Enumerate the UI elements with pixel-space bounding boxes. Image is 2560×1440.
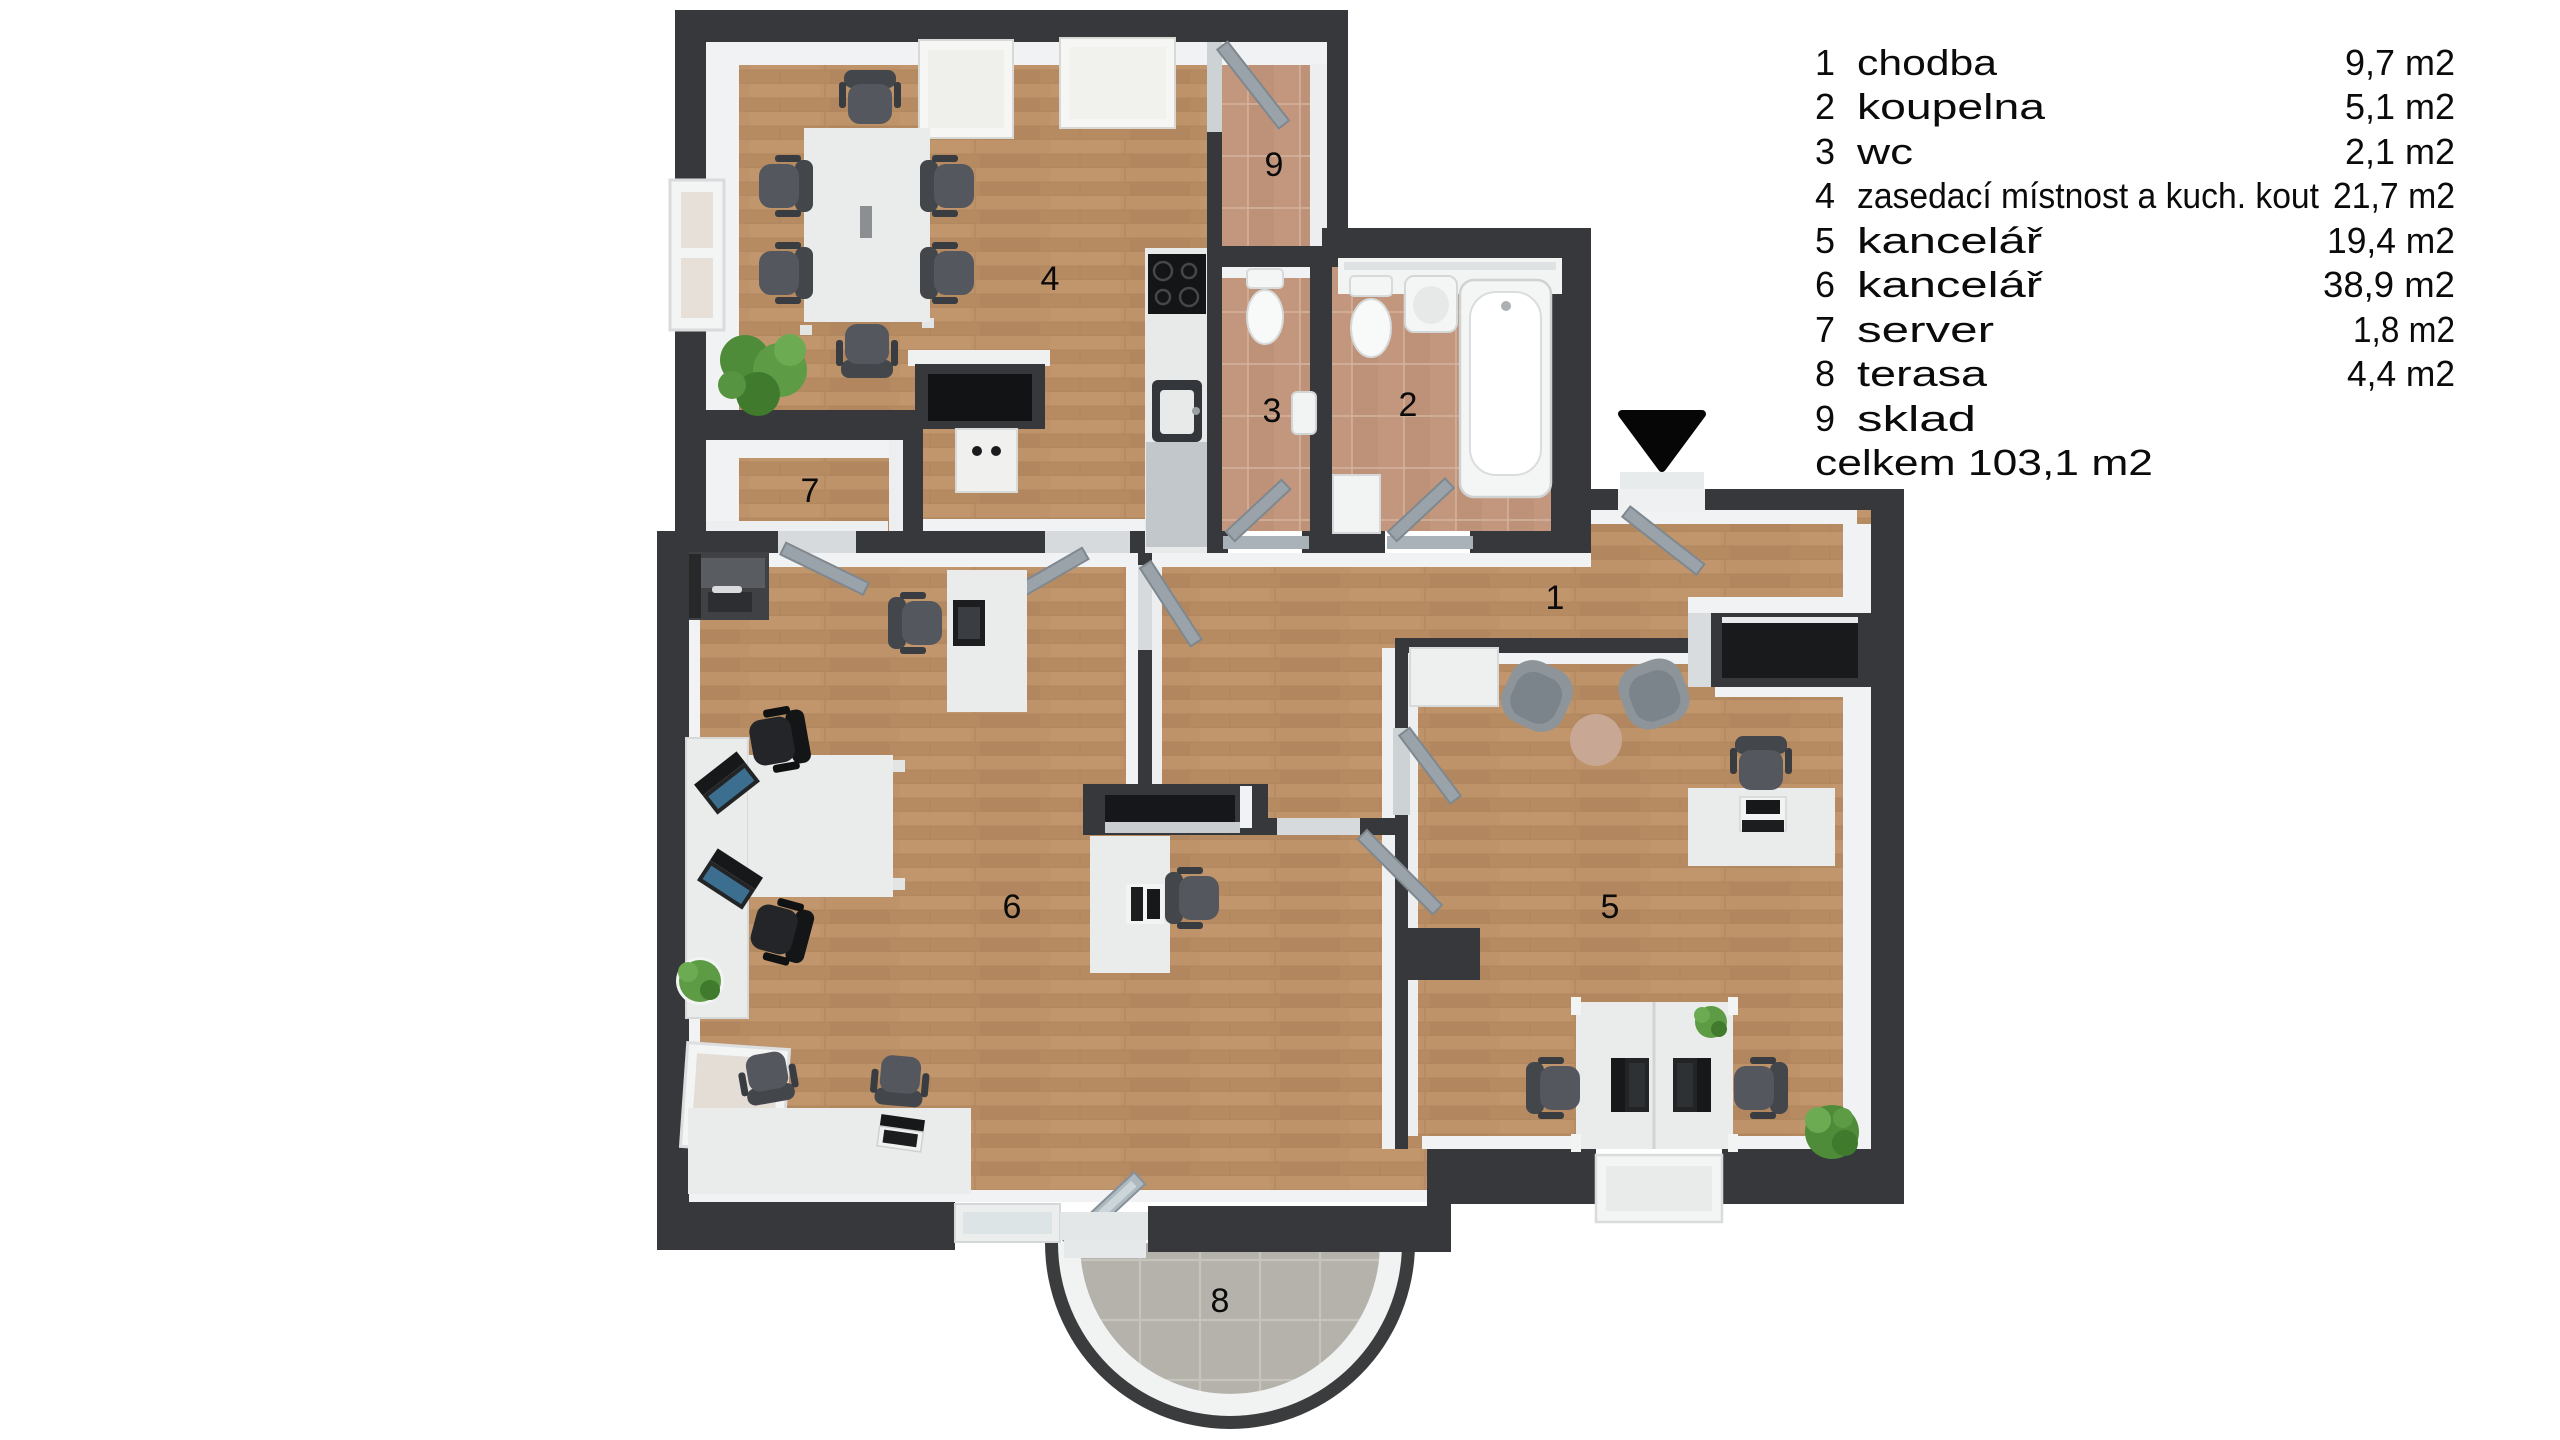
svg-text:5: 5 <box>1601 888 1620 926</box>
svg-text:2: 2 <box>1815 86 1835 127</box>
svg-text:1: 1 <box>1546 579 1565 617</box>
svg-text:3: 3 <box>1815 131 1835 172</box>
svg-text:chodba: chodba <box>1857 42 1998 83</box>
svg-text:7: 7 <box>801 472 820 510</box>
svg-text:9: 9 <box>1815 398 1835 439</box>
svg-text:terasa: terasa <box>1857 353 1988 394</box>
svg-text:9: 9 <box>1265 146 1284 184</box>
svg-text:koupelna: koupelna <box>1857 86 2046 127</box>
svg-text:4,4 m2: 4,4 m2 <box>2347 353 2455 394</box>
svg-text:21,7 m2: 21,7 m2 <box>2333 175 2455 216</box>
svg-text:sklad: sklad <box>1857 398 1976 439</box>
svg-text:4: 4 <box>1041 260 1060 298</box>
svg-text:celkem 103,1 m2: celkem 103,1 m2 <box>1815 442 2153 483</box>
svg-text:6: 6 <box>1003 888 1022 926</box>
svg-text:server: server <box>1857 309 1994 350</box>
svg-text:38,9 m2: 38,9 m2 <box>2323 264 2455 305</box>
svg-text:kancelář: kancelář <box>1857 220 2043 261</box>
svg-text:3: 3 <box>1263 392 1282 430</box>
svg-text:2: 2 <box>1399 386 1418 424</box>
svg-text:8: 8 <box>1211 1282 1230 1320</box>
svg-text:1,8 m2: 1,8 m2 <box>2353 309 2455 350</box>
svg-text:8: 8 <box>1815 353 1835 394</box>
svg-text:2,1 m2: 2,1 m2 <box>2345 131 2455 172</box>
svg-text:wc: wc <box>1856 131 1913 172</box>
svg-text:7: 7 <box>1815 309 1835 350</box>
svg-text:zasedací místnost a kuch. kout: zasedací místnost a kuch. kout <box>1857 175 2319 216</box>
svg-text:1: 1 <box>1815 42 1835 83</box>
svg-text:4: 4 <box>1815 175 1835 216</box>
svg-text:6: 6 <box>1815 264 1835 305</box>
svg-text:9,7 m2: 9,7 m2 <box>2345 42 2455 83</box>
svg-text:19,4 m2: 19,4 m2 <box>2327 220 2455 261</box>
svg-text:5: 5 <box>1815 220 1835 261</box>
svg-text:kancelář: kancelář <box>1857 264 2043 305</box>
svg-text:5,1 m2: 5,1 m2 <box>2345 86 2455 127</box>
